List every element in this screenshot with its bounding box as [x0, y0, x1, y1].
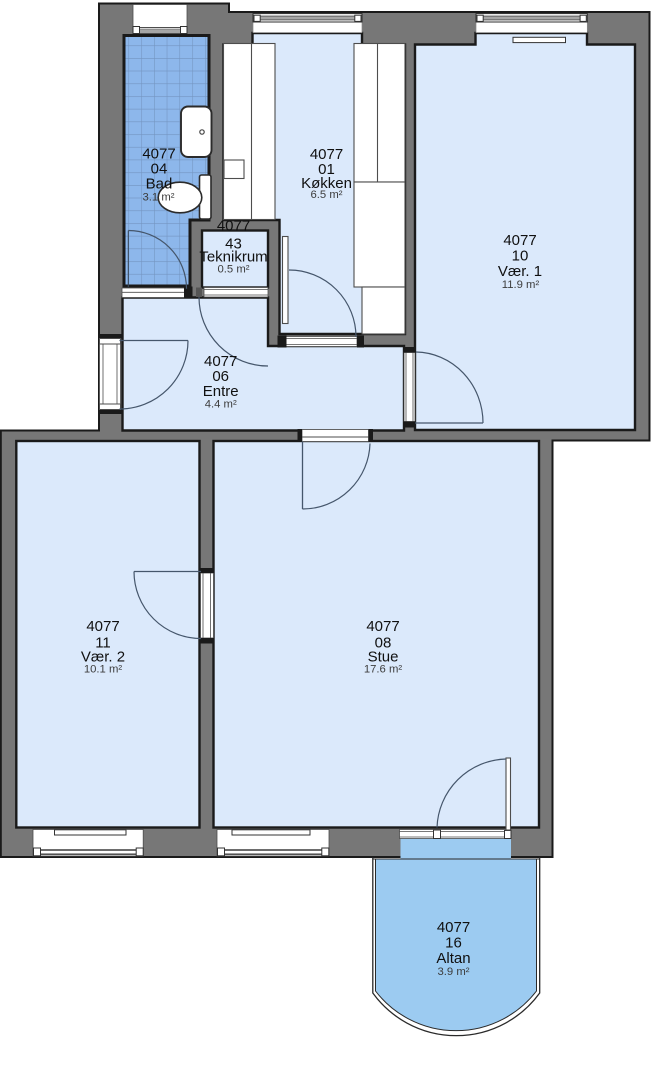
svg-text:4077: 4077 [217, 217, 250, 234]
svg-text:Bad: Bad [146, 175, 173, 192]
svg-text:16: 16 [445, 935, 462, 952]
svg-text:11.9 m²: 11.9 m² [502, 279, 540, 291]
svg-text:3.1 m²: 3.1 m² [142, 191, 174, 203]
svg-text:3.9 m²: 3.9 m² [437, 966, 469, 978]
svg-text:6.5 m²: 6.5 m² [310, 189, 342, 201]
svg-text:4.4 m²: 4.4 m² [205, 398, 237, 410]
svg-text:4077: 4077 [86, 618, 119, 635]
svg-text:4077: 4077 [366, 618, 399, 635]
svg-text:10.1 m²: 10.1 m² [84, 663, 123, 675]
svg-text:Vær. 1: Vær. 1 [498, 263, 542, 280]
svg-text:17.6 m²: 17.6 m² [364, 663, 403, 675]
svg-text:4077: 4077 [437, 919, 470, 936]
svg-text:Altan: Altan [436, 950, 470, 967]
svg-text:0.5 m²: 0.5 m² [217, 263, 249, 275]
svg-text:10: 10 [512, 247, 529, 264]
